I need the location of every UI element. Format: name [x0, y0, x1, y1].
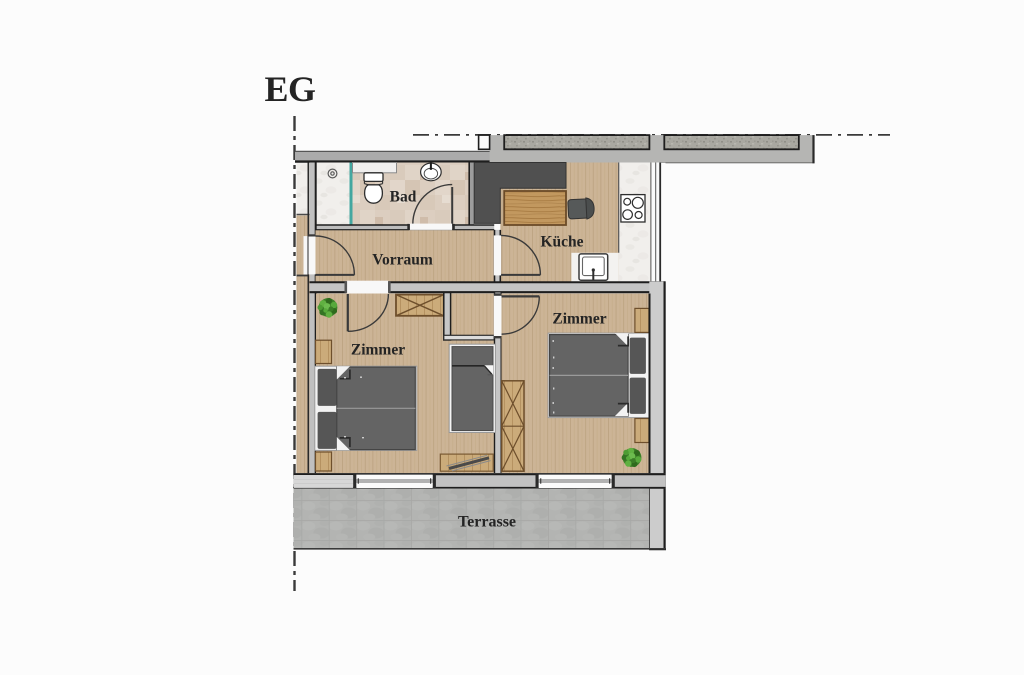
svg-text:EG: EG	[265, 69, 317, 109]
svg-text:Terrasse: Terrasse	[458, 514, 516, 531]
svg-text:Vorraum: Vorraum	[372, 252, 433, 269]
svg-text:Zimmer: Zimmer	[351, 342, 405, 359]
svg-text:Bad: Bad	[390, 189, 417, 206]
svg-text:Zimmer: Zimmer	[552, 311, 606, 328]
svg-text:Küche: Küche	[540, 234, 583, 251]
